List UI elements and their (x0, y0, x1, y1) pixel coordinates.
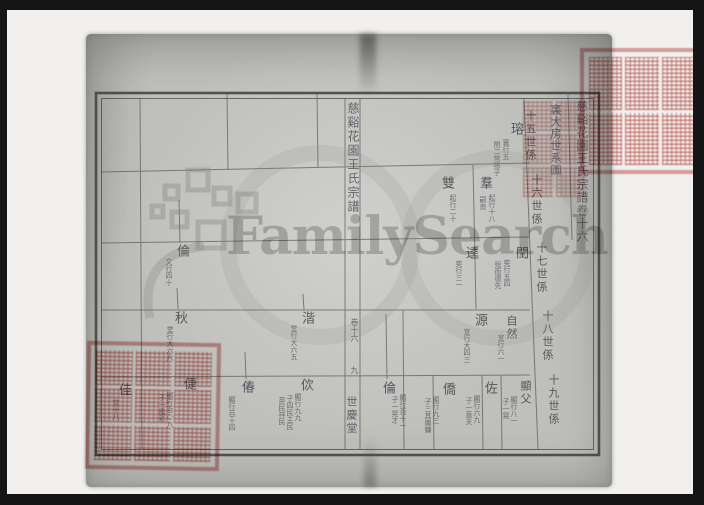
frame-edge (0, 0, 704, 10)
frame-edge (0, 494, 704, 505)
frame-edge (693, 0, 704, 505)
frame-edge (0, 0, 7, 505)
scanned-genealogy-image: 慈谿花園王氏宗譜卷十六 裏大房世系圖 十五世係 十六世係 十七世係 十八世係 十… (0, 0, 704, 505)
familysearch-wordmark: FamilySearch (226, 206, 608, 267)
